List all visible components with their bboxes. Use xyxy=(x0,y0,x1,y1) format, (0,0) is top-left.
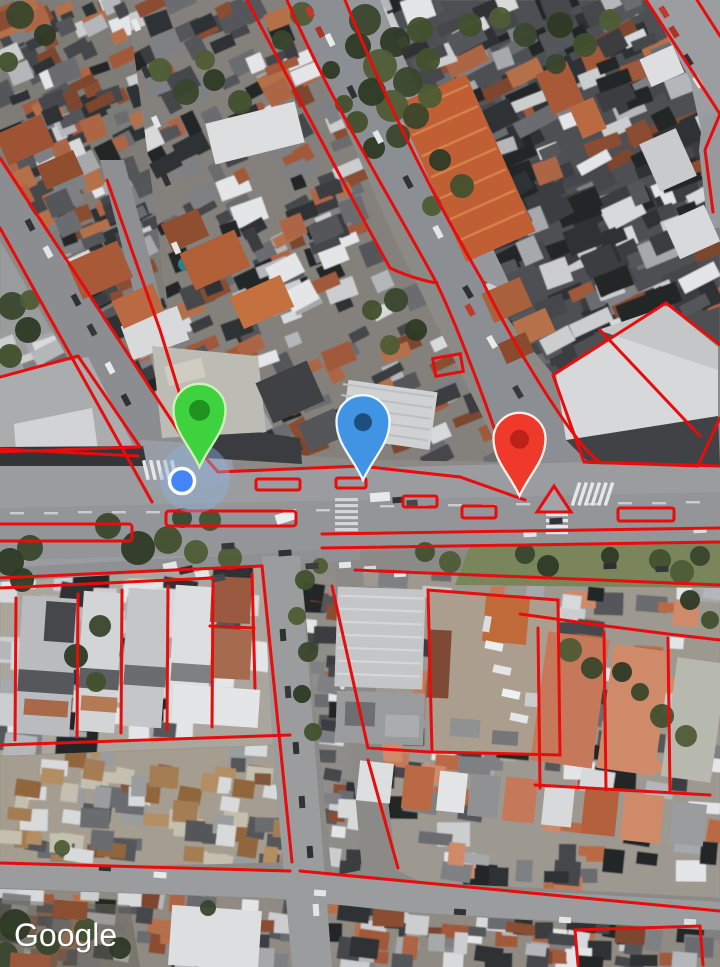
svg-text:Google: Google xyxy=(14,917,117,953)
